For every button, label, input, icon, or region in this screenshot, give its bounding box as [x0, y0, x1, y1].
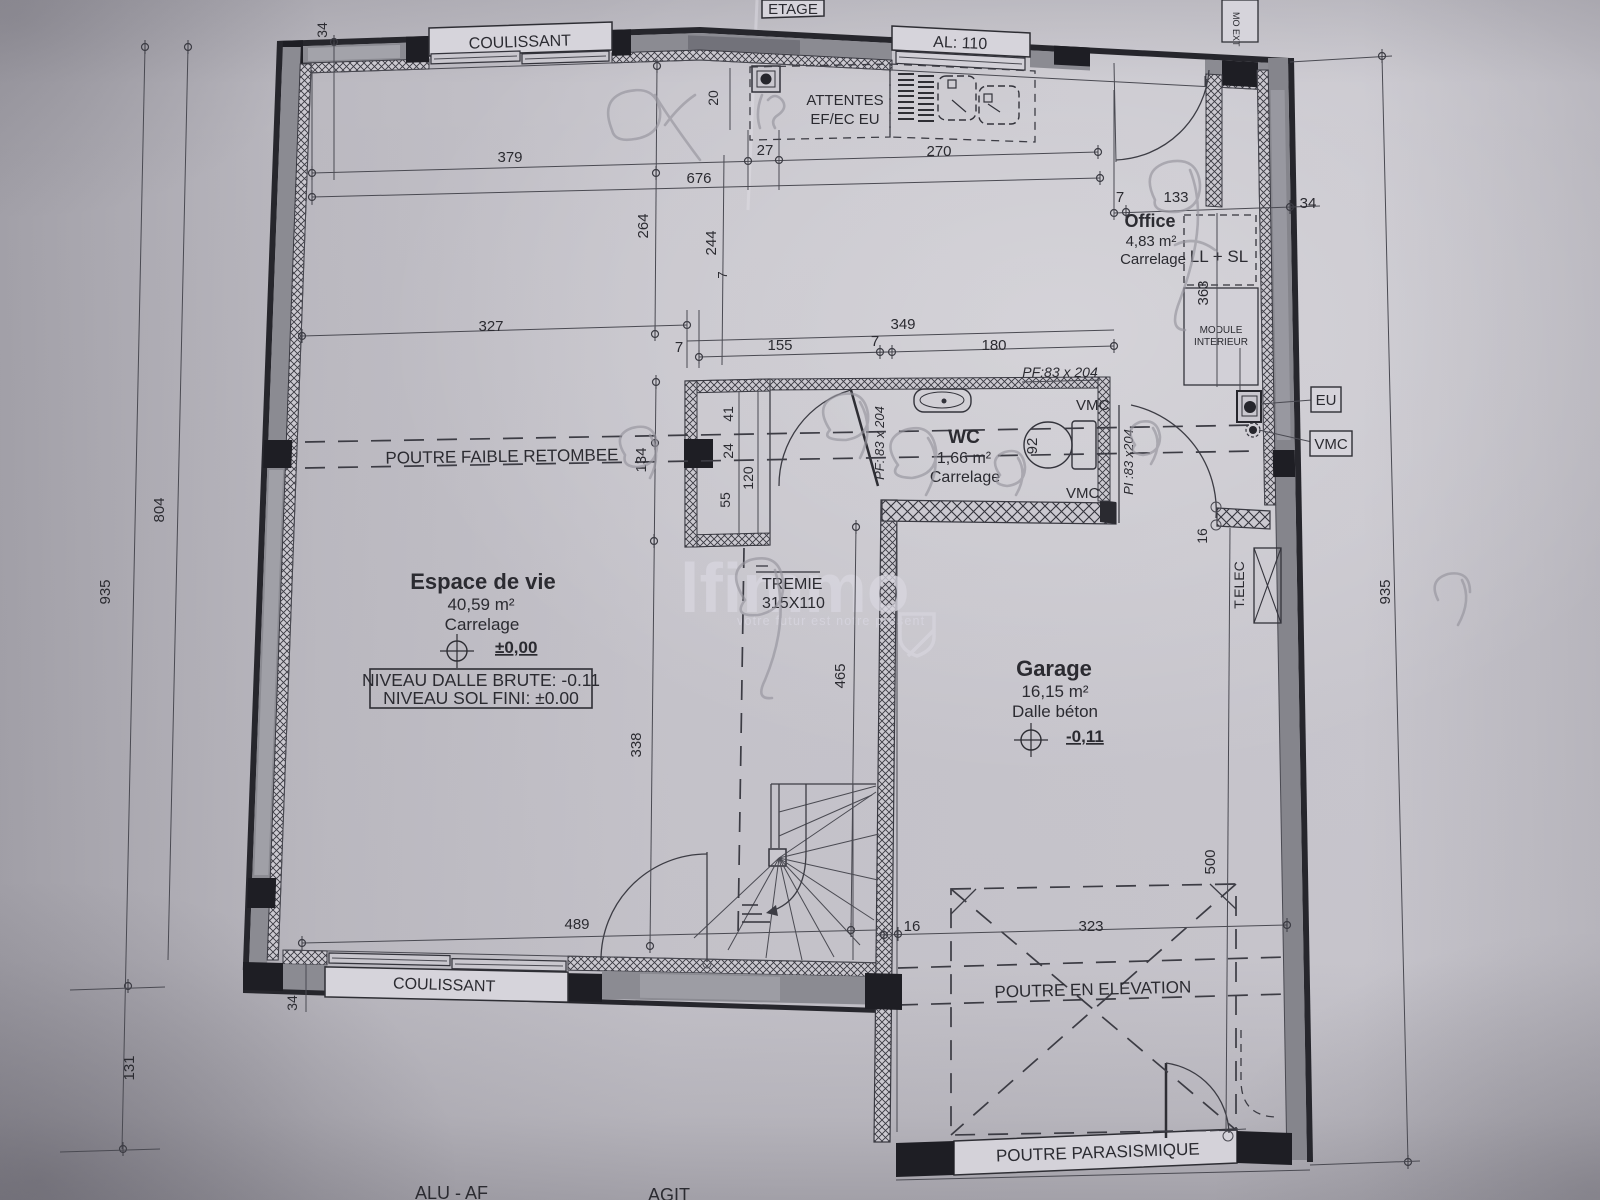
svg-text:NIVEAU SOL FINI: ±0.00: NIVEAU SOL FINI: ±0.00	[383, 688, 579, 708]
svg-text:323: 323	[1078, 918, 1103, 935]
svg-text:PF:83 x 204: PF:83 x 204	[1022, 364, 1098, 380]
svg-text:MO EXT: MO EXT	[1231, 12, 1241, 47]
svg-text:Office: Office	[1124, 211, 1175, 231]
svg-text:INTERIEUR: INTERIEUR	[1194, 337, 1248, 348]
svg-text:40,59 m²: 40,59 m²	[447, 595, 514, 614]
svg-text:180: 180	[981, 337, 1006, 354]
svg-text:votre futur est notre présent: votre futur est notre présent	[737, 614, 925, 628]
svg-text:34: 34	[314, 22, 330, 38]
svg-text:VMC: VMC	[1076, 397, 1110, 414]
svg-text:338: 338	[628, 732, 645, 757]
svg-text:34: 34	[1300, 195, 1317, 212]
svg-text:489: 489	[564, 916, 589, 933]
svg-text:379: 379	[497, 149, 522, 166]
svg-text:Garage: Garage	[1016, 656, 1092, 681]
svg-text:120: 120	[740, 466, 756, 490]
svg-text:20: 20	[705, 90, 721, 106]
svg-text:TREMIE: TREMIE	[762, 576, 822, 593]
svg-text:804: 804	[151, 497, 168, 522]
svg-text:-0,11: -0,11	[1066, 727, 1104, 746]
svg-text:Dalle béton: Dalle béton	[1012, 702, 1098, 721]
svg-text:131: 131	[121, 1055, 138, 1080]
svg-text:Carrelage: Carrelage	[445, 615, 520, 634]
svg-text:327: 327	[478, 318, 503, 335]
svg-text:VMC: VMC	[1066, 485, 1100, 502]
svg-text:935: 935	[1377, 579, 1394, 604]
svg-text:7: 7	[871, 333, 879, 350]
svg-text:244: 244	[703, 230, 720, 255]
svg-text:7: 7	[1116, 189, 1124, 206]
svg-text:COULISSANT: COULISSANT	[468, 32, 571, 52]
svg-text:7: 7	[675, 339, 683, 356]
svg-text:16,15 m²: 16,15 m²	[1021, 682, 1088, 701]
svg-text:1,66 m²: 1,66 m²	[937, 450, 992, 467]
svg-text:ATTENTES: ATTENTES	[806, 92, 883, 109]
svg-text:349: 349	[890, 316, 915, 333]
svg-text:155: 155	[767, 337, 792, 354]
svg-text:Espace de vie: Espace de vie	[410, 569, 556, 594]
svg-text:MODULE: MODULE	[1200, 325, 1243, 336]
svg-text:VMC: VMC	[1314, 436, 1348, 453]
svg-text:133: 133	[1163, 189, 1188, 206]
svg-text:16: 16	[904, 918, 921, 935]
svg-text:LL + SL: LL + SL	[1190, 247, 1248, 266]
svg-text:T.ELEC: T.ELEC	[1231, 561, 1247, 608]
svg-text:16: 16	[1194, 528, 1210, 544]
svg-text:EU: EU	[1316, 392, 1337, 409]
svg-text:POUTRE FAIBLE RETOMBEE: POUTRE FAIBLE RETOMBEE	[385, 445, 618, 467]
svg-text:92: 92	[1024, 438, 1041, 455]
svg-text:363: 363	[1195, 280, 1212, 305]
svg-text:34: 34	[284, 995, 300, 1011]
svg-text:41: 41	[720, 406, 736, 422]
svg-text:676: 676	[686, 170, 711, 187]
svg-text:4,83 m²: 4,83 m²	[1126, 233, 1177, 250]
svg-text:WC: WC	[948, 427, 980, 448]
svg-text:270: 270	[926, 143, 951, 160]
svg-text:NIVEAU DALLE BRUTE: -0.11: NIVEAU DALLE BRUTE: -0.11	[362, 670, 600, 690]
svg-text:ETAGE: ETAGE	[768, 1, 818, 18]
svg-text:±0,00: ±0,00	[495, 638, 537, 657]
svg-text:COULISSANT: COULISSANT	[393, 975, 496, 995]
svg-text:24: 24	[720, 443, 736, 459]
svg-text:AL: 110: AL: 110	[933, 34, 988, 53]
svg-text:935: 935	[97, 579, 114, 604]
svg-text:EF/EC EU: EF/EC EU	[810, 111, 879, 128]
svg-text:ALU - AF: ALU - AF	[415, 1183, 488, 1200]
svg-text:264: 264	[635, 213, 652, 238]
svg-text:7: 7	[715, 271, 730, 278]
svg-text:134: 134	[633, 447, 650, 472]
svg-text:55: 55	[717, 492, 733, 508]
svg-text:27: 27	[757, 142, 774, 159]
svg-text:PI :83 x204: PI :83 x204	[1121, 429, 1136, 495]
svg-text:PF: 83 x 204: PF: 83 x 204	[872, 406, 887, 480]
svg-text:Carrelage: Carrelage	[930, 469, 1000, 486]
svg-text:Carrelage: Carrelage	[1120, 251, 1186, 268]
svg-text:465: 465	[832, 663, 849, 688]
svg-text:500: 500	[1202, 849, 1219, 874]
svg-text:AGIT: AGIT	[648, 1185, 690, 1200]
